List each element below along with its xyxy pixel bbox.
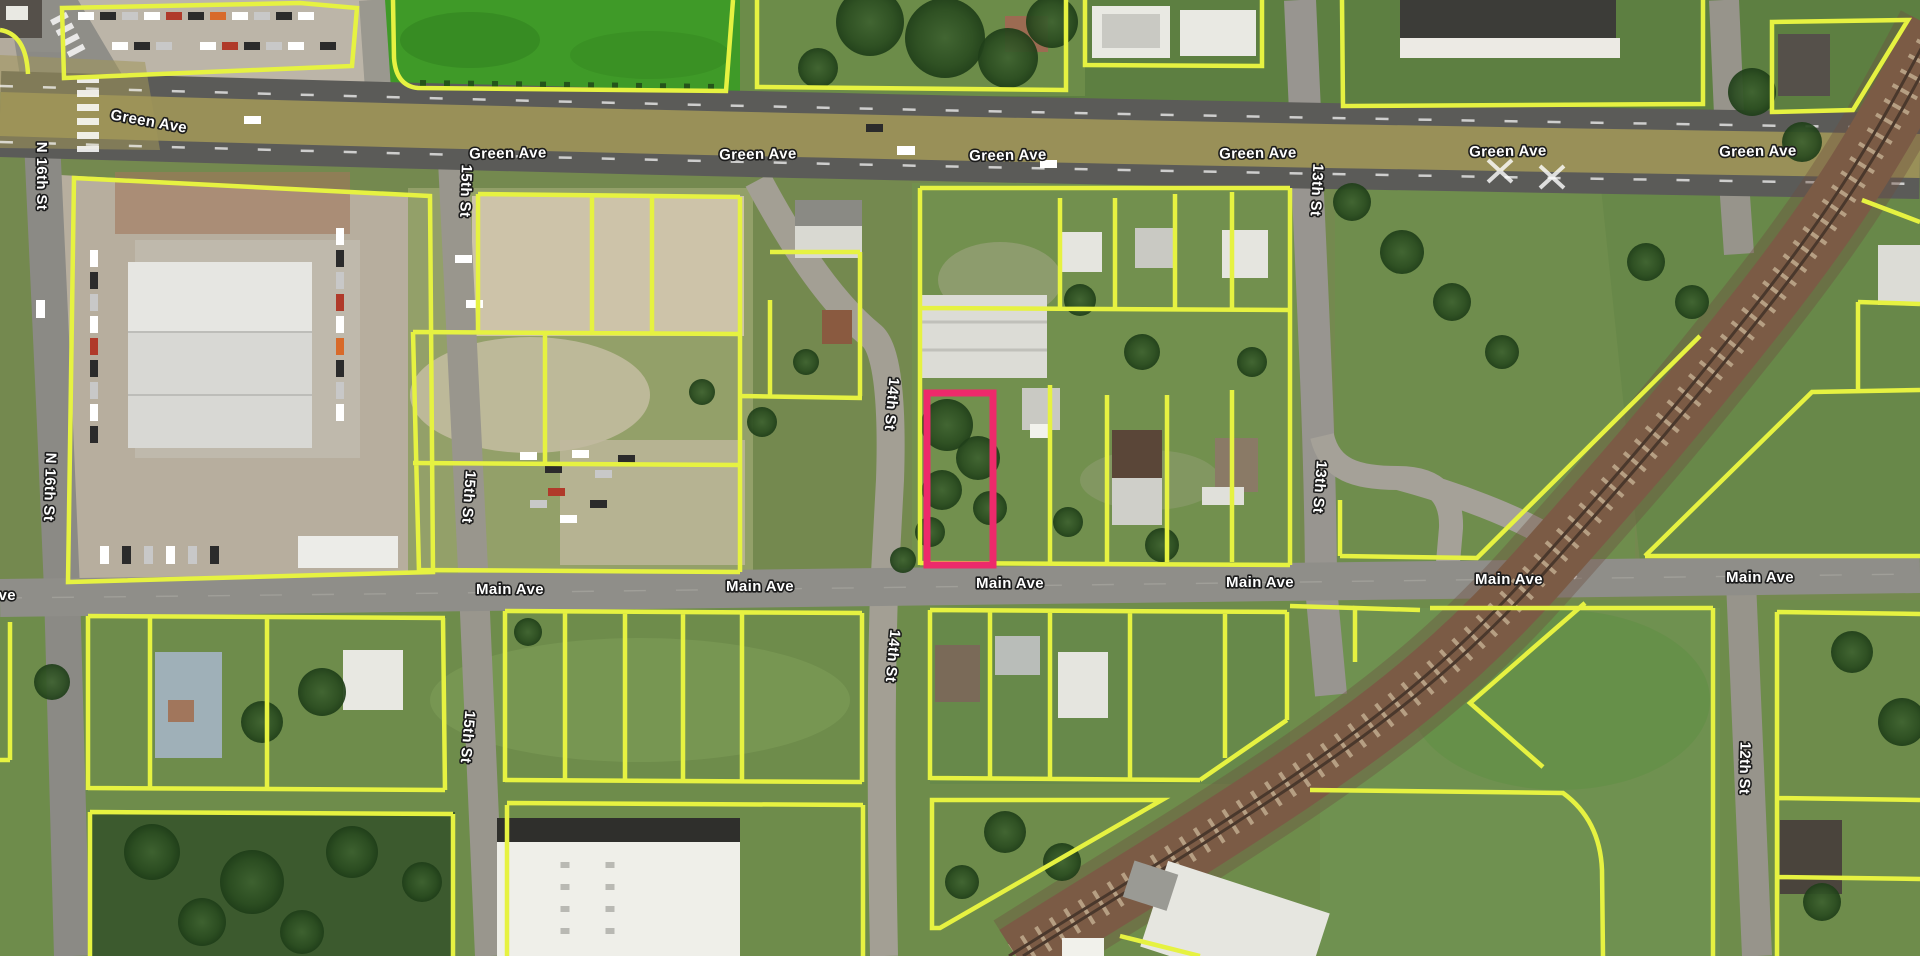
- street-label-n-16th-st: N 16th St: [40, 452, 59, 521]
- street-label-green-ave: Green Ave: [969, 146, 1047, 164]
- house: [1222, 230, 1268, 278]
- tree: [1380, 230, 1424, 274]
- tree: [1237, 347, 1267, 377]
- building: [1062, 938, 1104, 956]
- street-label-15th-st: 15th St: [456, 164, 475, 217]
- parcel-map-viewport[interactable]: Green Ave Green Ave Green Ave Green Ave …: [0, 0, 1920, 956]
- tree: [1053, 507, 1083, 537]
- building: [298, 536, 398, 568]
- dirt-lot: [472, 196, 744, 336]
- tree: [1831, 631, 1873, 673]
- street-label-green-ave: Green Ave: [1219, 144, 1297, 162]
- tree: [978, 28, 1038, 88]
- street-label-green-ave: Green Ave: [469, 144, 547, 162]
- tree: [1803, 883, 1841, 921]
- house: [1022, 388, 1060, 430]
- tree: [326, 826, 378, 878]
- street-label-main-ave: Main Ave: [726, 578, 794, 595]
- field-mottle: [570, 31, 730, 79]
- house: [1062, 232, 1102, 272]
- dark-house: [1780, 820, 1842, 894]
- street-label-green-ave: Green Ave: [1719, 142, 1797, 160]
- dark-roof-building: [1400, 0, 1616, 38]
- street-label-main-ave: Main Ave: [476, 581, 544, 598]
- street-label-main-ave: Main Ave: [1226, 574, 1294, 591]
- field-mottle: [400, 12, 540, 68]
- tree: [1485, 335, 1519, 369]
- tree: [178, 898, 226, 946]
- street-label-green-ave: Green Ave: [719, 145, 797, 163]
- building: [343, 650, 403, 710]
- house: [935, 645, 980, 702]
- tree: [402, 862, 442, 902]
- warehouse-roof: [128, 262, 312, 332]
- tree: [241, 701, 283, 743]
- house: [1135, 228, 1173, 268]
- tree: [945, 865, 979, 899]
- dirt-lot: [560, 440, 745, 565]
- tree: [890, 547, 916, 573]
- building: [1180, 10, 1256, 56]
- tree: [747, 407, 777, 437]
- tree: [689, 379, 715, 405]
- industrial-dark-roof: [497, 818, 740, 842]
- street-label-main-ave: Main Ave: [1726, 569, 1794, 586]
- street-label-main-ave: Main Ave: [0, 587, 16, 604]
- tree: [1064, 284, 1096, 316]
- house-block-grass: [930, 612, 1290, 784]
- street-label-12th-st: 12th St: [1736, 741, 1754, 794]
- tree: [1433, 283, 1471, 321]
- tree: [1675, 285, 1709, 319]
- building: [1878, 245, 1920, 305]
- gable-roof: [795, 200, 862, 226]
- tree: [34, 664, 70, 700]
- house-gable: [1112, 478, 1162, 525]
- tree: [220, 850, 284, 914]
- tree: [798, 48, 838, 88]
- street-label-main-ave: Main Ave: [1475, 571, 1543, 588]
- tree: [905, 0, 985, 78]
- street-label-n-16th-st: N 16th St: [33, 142, 50, 211]
- aerial-parcel-map[interactable]: Green Ave Green Ave Green Ave Green Ave …: [0, 0, 1920, 956]
- shed: [1778, 34, 1830, 96]
- rust-patch: [168, 700, 194, 722]
- rust-shed: [822, 310, 852, 344]
- tree: [984, 811, 1026, 853]
- house-dark-roof: [1112, 430, 1162, 478]
- tree: [124, 824, 180, 880]
- tree: [280, 910, 324, 954]
- building-roof-inner: [1102, 14, 1160, 48]
- trailer: [1202, 487, 1244, 505]
- street-label-green-ave: Green Ave: [1469, 142, 1547, 160]
- tree: [514, 618, 542, 646]
- house: [1058, 652, 1108, 718]
- building-awning: [1400, 38, 1620, 58]
- house: [995, 636, 1040, 675]
- dirt-lot: [410, 337, 650, 453]
- street-label-main-ave: Main Ave: [976, 575, 1044, 592]
- tree: [1145, 528, 1179, 562]
- house: [1215, 438, 1258, 492]
- tree: [1124, 334, 1160, 370]
- industrial-building: [497, 842, 740, 956]
- street-label-13th-st: 13th St: [1307, 163, 1327, 217]
- tree: [1333, 183, 1371, 221]
- tree: [793, 349, 819, 375]
- tree: [1627, 243, 1665, 281]
- tree: [298, 668, 346, 716]
- building: [6, 6, 28, 20]
- tree: [1728, 68, 1776, 116]
